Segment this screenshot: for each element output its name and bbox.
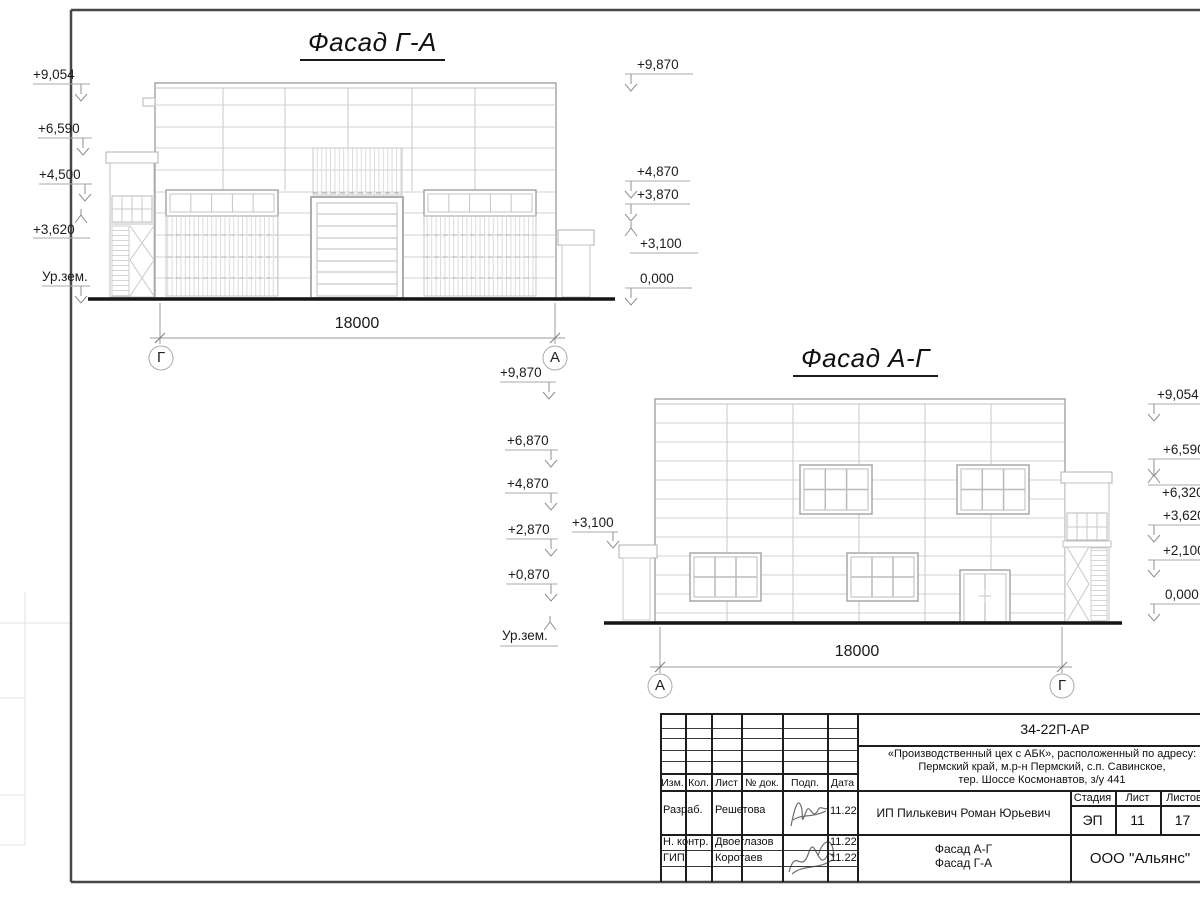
elevation-label: +3,620 xyxy=(33,223,75,238)
col-kol: Кол. xyxy=(686,777,711,789)
stair-tower-2 xyxy=(1061,472,1112,622)
binding-strip xyxy=(0,592,71,845)
elevation-label: +2,100 xyxy=(1163,544,1200,559)
sheet-number: 11 xyxy=(1115,812,1160,828)
elevation-marks xyxy=(33,74,1200,646)
row-name: Коротаев xyxy=(715,852,763,864)
col-doc: № док. xyxy=(742,777,782,789)
annex xyxy=(558,230,594,297)
sheet-header: Лист xyxy=(1115,792,1160,804)
elevation-label: 0,000 xyxy=(1165,588,1199,603)
elevation-label: Ур.зем. xyxy=(42,270,88,285)
axis-label-g: Г xyxy=(149,350,173,367)
elevation-label: +9,870 xyxy=(637,58,679,73)
dimension-label: 18000 xyxy=(822,643,892,661)
stage-header: Стадия xyxy=(1070,792,1115,804)
entrance-door xyxy=(960,570,1010,622)
project-line-3: тер. Шоссе Космонавтов, з/у 441 xyxy=(857,774,1200,786)
elevation-label: +9,054 xyxy=(33,68,75,83)
elevation-label: +4,870 xyxy=(637,165,679,180)
elevation-label: +4,500 xyxy=(39,168,81,183)
col-list: Лист xyxy=(712,777,741,789)
facade-ag-title: Фасад А-Г xyxy=(793,344,938,377)
stair-tower xyxy=(106,152,158,297)
row-role: ГИП xyxy=(663,852,685,864)
sheet-title-1: Фасад А-Г xyxy=(857,842,1070,856)
facade-ga-title: Фасад Г-А xyxy=(300,28,445,61)
company-name: ООО "Альянс" xyxy=(1070,850,1200,867)
client-name: ИП Пилькевич Роман Юрьевич xyxy=(857,806,1070,820)
louver-panel xyxy=(313,148,402,195)
col-izm: Изм. xyxy=(660,777,685,789)
elevation-label: +6,590 xyxy=(38,122,80,137)
sheet-title-2: Фасад Г-А xyxy=(857,856,1070,870)
axis-label-a2: А xyxy=(648,678,672,695)
elevation-label: +9,054 xyxy=(1157,388,1199,403)
elevation-label: +3,100 xyxy=(572,516,614,531)
elevation-label: +6,870 xyxy=(507,434,549,449)
project-line-2: Пермский край, м.р-н Пермский, с.п. Сави… xyxy=(857,761,1200,773)
entrance-canopy xyxy=(619,545,657,620)
row-date: 11.22 xyxy=(830,805,857,817)
elevation-label: +3,620 xyxy=(1163,509,1200,524)
stage-value: ЭП xyxy=(1070,812,1115,828)
elevation-label: +3,100 xyxy=(640,237,682,252)
elevation-label: +3,870 xyxy=(637,188,679,203)
elevation-label: +9,870 xyxy=(500,366,542,381)
drawing-sheet: Фасад Г-А Фасад А-Г +9,054 +6,590 +4,500… xyxy=(0,0,1200,900)
sheets-total: 17 xyxy=(1160,812,1200,828)
row-name: Решетова xyxy=(715,804,765,816)
cladding-panel-left xyxy=(166,216,278,296)
row-date: 11.22 xyxy=(830,852,857,864)
elevation-label: +4,870 xyxy=(507,477,549,492)
elevation-label: Ур.зем. xyxy=(502,629,548,644)
elevation-label: +6,320 xyxy=(1162,486,1200,501)
elevation-label: 0,000 xyxy=(640,272,674,287)
row-role: Разраб. xyxy=(663,804,703,816)
row-role: Н. контр. xyxy=(663,836,708,848)
parapet-tab xyxy=(143,98,155,106)
upper-window-2 xyxy=(957,465,1029,514)
cladding-panel-right xyxy=(424,216,536,296)
sheets-header: Листов xyxy=(1160,792,1200,804)
project-line-1: «Производственный цех с АБК», расположен… xyxy=(857,748,1200,760)
axis-label-a: А xyxy=(543,350,567,367)
window-band-right xyxy=(424,190,536,216)
elevation-label: +2,870 xyxy=(508,523,550,538)
lower-window-2 xyxy=(847,553,918,601)
upper-window-1 xyxy=(800,465,872,514)
row-name: Двоеглазов xyxy=(715,836,773,848)
window-band-left xyxy=(166,190,278,216)
elevation-label: +6,590 xyxy=(1163,443,1200,458)
lower-window-1 xyxy=(690,553,761,601)
col-data: Дата xyxy=(828,777,857,789)
doc-code: 34-22П-АР xyxy=(857,721,1200,737)
dimension-label: 18000 xyxy=(322,315,392,333)
row-date: 11.22 xyxy=(830,836,857,848)
col-podp: Подп. xyxy=(783,777,827,789)
sectional-gate xyxy=(311,197,403,298)
elevation-label: +0,870 xyxy=(508,568,550,583)
axis-label-g2: Г xyxy=(1050,678,1074,695)
